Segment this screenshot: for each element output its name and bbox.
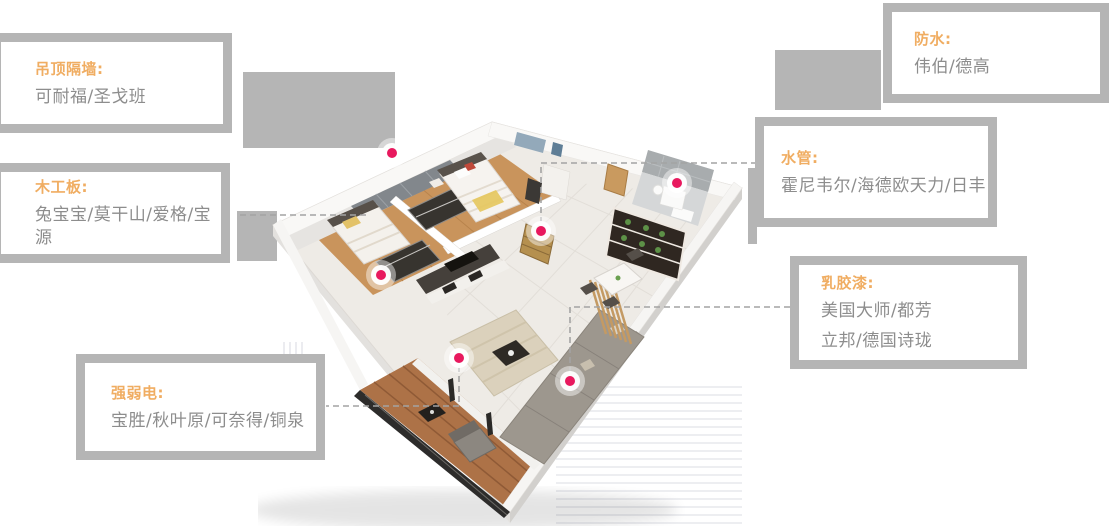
pin-dot [672,178,682,188]
pin-ring [371,265,391,285]
location-pin-1-icon[interactable] [377,138,407,168]
pin-ring [382,143,402,163]
pin-dot [536,226,546,236]
callout-label: 吊顶隔墙: [35,58,223,79]
callout-brands: 立邦/德国诗珑 [821,330,1018,353]
house-shadow [258,490,678,526]
pin-dot [376,270,386,280]
location-pin-4-icon[interactable] [366,260,396,290]
callout-waterproof: 防水: 伟伯/德高 [883,3,1109,103]
callout-label: 防水: [914,28,1100,49]
callout-electric: 强弱电: 宝胜/秋叶原/可奈得/铜泉 [76,354,325,460]
pin-dot [454,353,464,363]
pin-ring [560,371,580,391]
pin-dot [387,148,397,158]
location-pin-3-icon[interactable] [526,216,556,246]
callout-latex-paint: 乳胶漆: 美国大师/都芳 立邦/德国诗珑 [790,256,1027,369]
callout-wood-board: 木工板: 兔宝宝/莫干山/爱格/宝源 [0,163,230,263]
pin-ring [531,221,551,241]
location-pin-2-icon[interactable] [662,168,692,198]
callout-brands: 兔宝宝/莫干山/爱格/宝源 [35,204,221,250]
callout-label: 水管: [781,147,988,168]
pin-ring [667,173,687,193]
callout-brands: 伟伯/德高 [914,56,1100,79]
callout-brands: 霍尼韦尔/海德欧天力/日丰 [781,175,988,198]
location-pin-5-icon[interactable] [444,343,474,373]
callout-label: 木工板: [35,176,221,197]
callout-ceiling-partition: 吊顶隔墙: 可耐福/圣戈班 [0,33,232,133]
pin-ring [449,348,469,368]
callout-water-pipe: 水管: 霍尼韦尔/海德欧天力/日丰 [755,117,997,227]
callout-label: 强弱电: [111,382,316,403]
location-pin-6-icon[interactable] [555,366,585,396]
callout-brands: 可耐福/圣戈班 [35,86,223,109]
callout-brands: 宝胜/秋叶原/可奈得/铜泉 [111,410,316,433]
gray-deco-block-top-right [775,50,881,110]
infographic-canvas: 吊顶隔墙: 可耐福/圣戈班 木工板: 兔宝宝/莫干山/爱格/宝源 强弱电: 宝胜… [0,0,1118,526]
callout-brands: 美国大师/都芳 [821,300,1018,323]
pin-dot [565,376,575,386]
callout-label: 乳胶漆: [821,272,1018,293]
